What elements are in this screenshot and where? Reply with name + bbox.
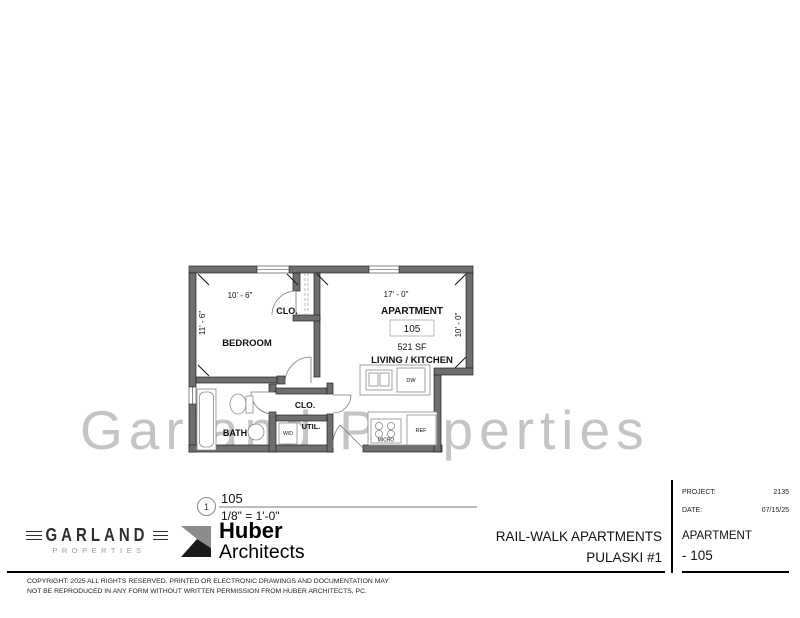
wall-bath-right-b (269, 412, 276, 452)
sink-bowl-right (380, 373, 389, 386)
floor-plan: 10' - 6" 17' - 0" 11' - 6" 10' - 0" BEDR… (183, 257, 481, 469)
garland-lines-right (153, 531, 169, 541)
label-bath: BATH (223, 428, 247, 438)
garland-lines-left (26, 531, 42, 541)
huber-logo-line2: Architects (219, 543, 305, 563)
date-label: DATE: (682, 507, 702, 514)
label-bedroom: BEDROOM (222, 338, 272, 349)
view-number: 1 (204, 502, 209, 512)
garland-logo-tagline: PROPERTIES (26, 546, 168, 555)
label-util: UTIL. (302, 422, 321, 431)
date-value: 07/15/25 (762, 507, 789, 514)
copyright-notice: COPYRIGHT: 2025 ALL RIGHTS RESERVED. PRI… (27, 577, 389, 596)
bathtub-inner (200, 392, 214, 447)
bath-door-arc (251, 392, 273, 414)
huber-logo-line1: Huber (219, 520, 305, 542)
wall-closet-stub (293, 273, 300, 291)
view-name: 105 (221, 491, 243, 506)
label-closet-mid: CLO. (295, 400, 315, 410)
date-row: DATE: 07/15/25 (682, 507, 789, 514)
wall-left-a (189, 273, 196, 387)
titleblock-rule-left (7, 571, 665, 573)
view-title-underline (219, 506, 477, 508)
wall-hall-top (276, 388, 327, 394)
label-dishwasher: DW (406, 378, 416, 384)
label-area: 521 SF (397, 342, 427, 352)
wall-bedroom-bottom (196, 377, 277, 383)
label-refrigerator: REF (416, 428, 428, 434)
toilet-tank (246, 396, 253, 413)
copyright-line1: COPYRIGHT: 2025 ALL RIGHTS RESERVED. PRI… (27, 577, 389, 587)
closet-rod (305, 273, 308, 315)
view-number-bubble: 1 (197, 497, 216, 516)
sheet-number: - 105 (682, 548, 713, 563)
wall-post (277, 376, 285, 384)
toilet-bowl (230, 394, 246, 414)
dim-height-left: 11' - 6" (198, 311, 207, 335)
entry-door-arc (333, 425, 340, 448)
label-closet-top: CLO. (276, 306, 298, 316)
entry-door-leaf (340, 425, 363, 448)
dim-width-right: 17' - 0" (384, 290, 409, 299)
huber-logo-text: Huber Architects (219, 520, 305, 563)
closet2-door-arc (333, 395, 351, 413)
label-apartment: APARTMENT (381, 306, 443, 317)
wall-top-c (399, 266, 473, 273)
sheet-label: APARTMENT (682, 530, 752, 542)
titleblock-rule-right (682, 571, 789, 573)
burner (375, 422, 382, 429)
sink-bowl-left (369, 373, 378, 386)
huber-logo-icon (178, 523, 214, 560)
project-name-line2: PULASKI #1 (420, 550, 662, 565)
wall-bath-right-a (269, 384, 276, 392)
burner (387, 422, 394, 429)
project-number: 2135 (773, 489, 789, 496)
project-name-line1: RAIL-WALK APARTMENTS (420, 529, 662, 544)
label-unit-number: 105 (404, 324, 421, 335)
titleblock-divider (671, 480, 673, 573)
wall-util-top (276, 415, 327, 421)
label-washer-dryer: W/D (283, 431, 293, 437)
label-living-kitchen: LIVING / KITCHEN (371, 355, 453, 366)
wall-top-b (289, 266, 369, 273)
project-title: RAIL-WALK APARTMENTS PULASKI #1 (420, 529, 662, 565)
wall-closet-right (314, 273, 320, 377)
bath-sink (248, 424, 264, 440)
wall-hall-right-a (327, 383, 333, 394)
wall-right (466, 273, 473, 368)
copyright-line2: NOT BE REPRODUCED IN ANY FORM WITHOUT WR… (27, 587, 389, 597)
wall-bottom-b (363, 445, 442, 452)
dim-width-left: 10' - 6" (228, 291, 253, 300)
garland-logo-name: GARLAND (46, 525, 149, 546)
wall-step-h (434, 368, 473, 375)
dim-height-right: 10' - 0" (454, 312, 463, 337)
wall-top-a (189, 266, 257, 273)
project-row: PROJECT: 2135 (682, 489, 789, 496)
garland-logo: GARLAND PROPERTIES (26, 527, 168, 555)
bedroom-door-arc (285, 357, 311, 383)
wall-hall-right-b (327, 414, 333, 452)
project-label: PROJECT: (682, 489, 716, 496)
label-microwave: MICRO (378, 438, 395, 444)
